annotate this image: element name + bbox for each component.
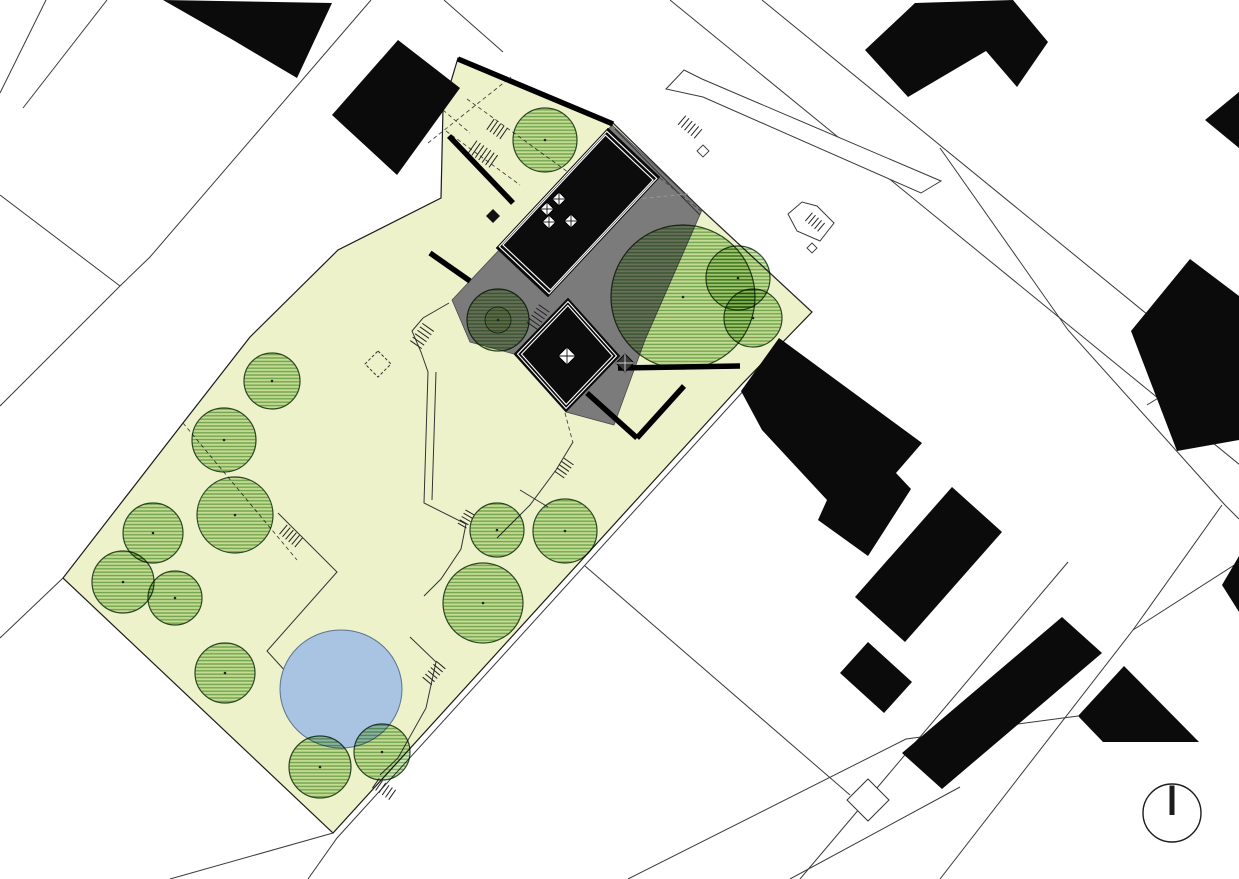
tree-center-dot xyxy=(737,277,740,280)
tree-center-dot xyxy=(752,317,755,320)
building-east-bar-foot xyxy=(840,642,912,713)
parcel-line xyxy=(23,0,107,108)
building-right-edge-wedge-top xyxy=(1205,92,1239,148)
tree-center-dot xyxy=(122,581,125,584)
tree-center-dot xyxy=(224,672,227,675)
parcel-line xyxy=(0,0,46,93)
parcel-line xyxy=(0,578,63,638)
building-right-slab xyxy=(1131,259,1239,451)
tree-center-dot xyxy=(496,529,499,532)
tree-center-dot xyxy=(174,597,177,600)
road-curb-long xyxy=(666,70,941,193)
parcel-line xyxy=(0,195,120,286)
building-top-right xyxy=(865,0,1048,97)
parcel-line xyxy=(0,286,120,406)
parcel-line xyxy=(585,566,850,795)
tree-center-dot xyxy=(564,530,567,533)
tree-center-dot xyxy=(319,766,322,769)
outline-building xyxy=(847,779,889,821)
tree-center-dot xyxy=(381,751,384,754)
parcel-line xyxy=(170,833,333,879)
building-right-edge-wedge xyxy=(1222,556,1239,612)
tree-center-dot xyxy=(152,532,155,535)
tree-center-dot xyxy=(544,139,547,142)
tree-center-dot xyxy=(271,380,274,383)
tree-center-dot xyxy=(682,296,685,299)
road-curb-small xyxy=(788,202,834,241)
building-top-left-of-site xyxy=(332,40,460,175)
building-southeast-bar xyxy=(902,617,1102,789)
parcel-line xyxy=(800,562,1068,879)
building-top-center xyxy=(163,0,332,78)
parcel-line xyxy=(1133,562,1239,630)
parcel-line xyxy=(444,0,503,52)
site-plan xyxy=(0,0,1239,879)
tree-center-dot xyxy=(223,439,226,442)
site-parcel xyxy=(63,58,812,833)
road-marker-box xyxy=(807,243,817,253)
building-east-large xyxy=(741,338,922,556)
tree-center-dot xyxy=(497,319,500,322)
road-marker-box xyxy=(697,145,709,157)
tree-center-dot xyxy=(234,514,237,517)
site-plan-canvas xyxy=(0,0,1239,879)
tree-center-dot xyxy=(482,602,485,605)
